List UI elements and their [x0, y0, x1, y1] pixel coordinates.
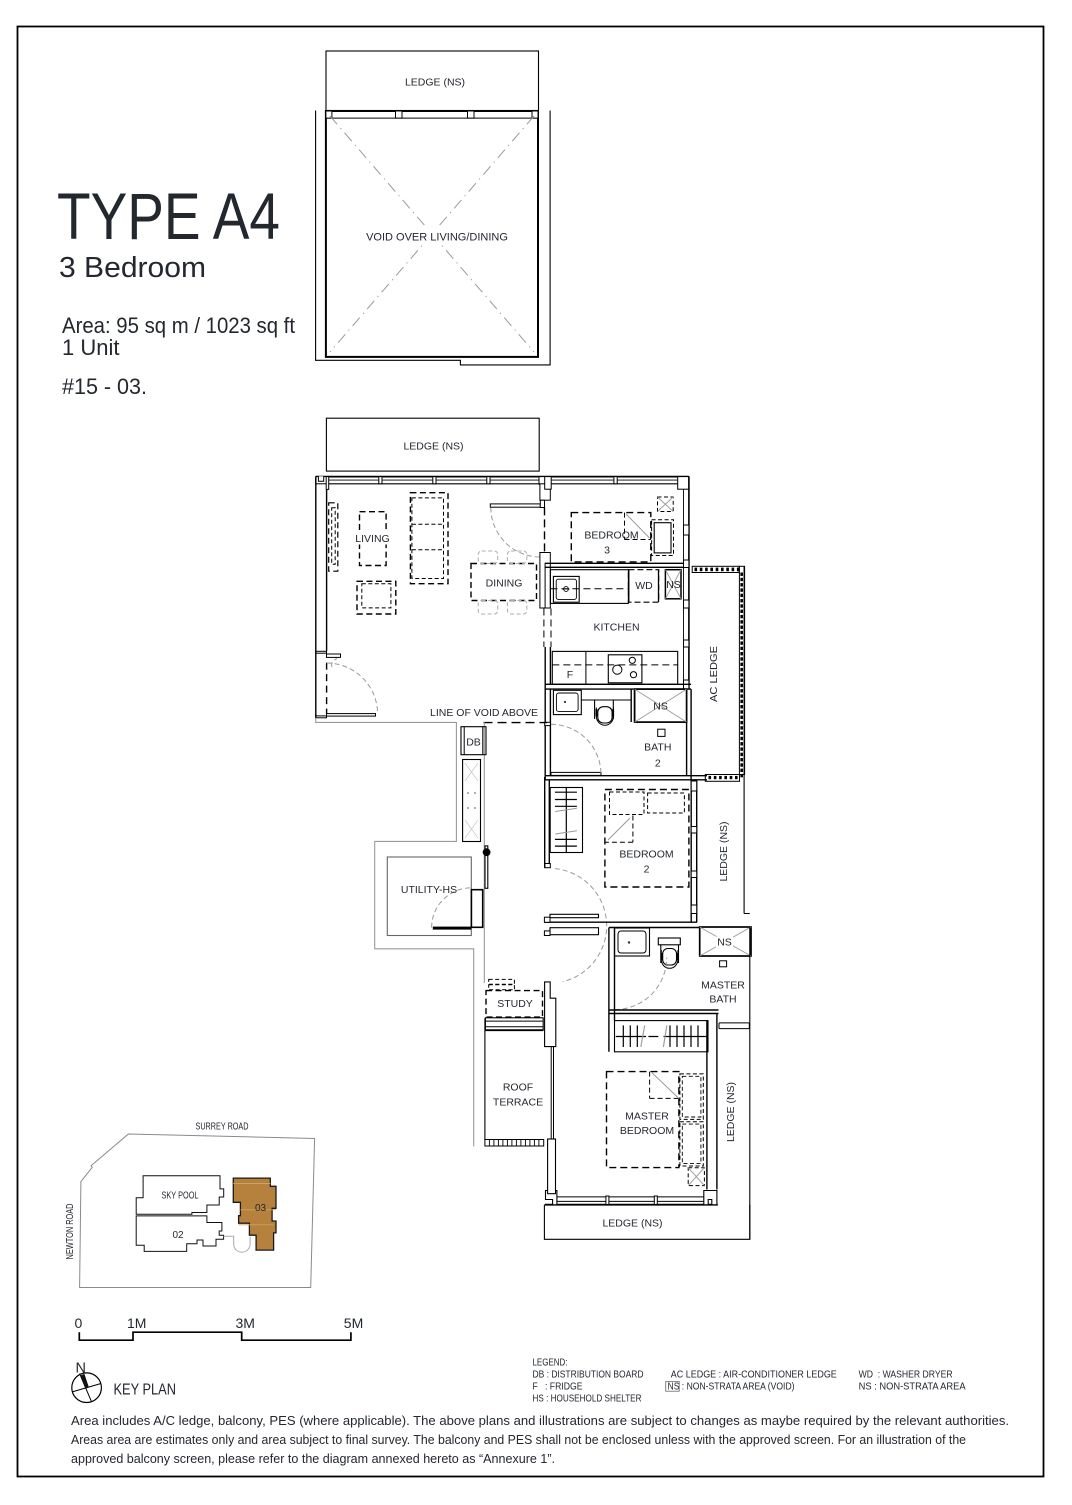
svg-text:AC LEDGE : AIR-CONDITIONER LED: AC LEDGE : AIR-CONDITIONER LEDGE [671, 1370, 837, 1381]
svg-text:WD : WASHER DRYER: WD : WASHER DRYER [859, 1370, 953, 1381]
svg-text:BEDROOM: BEDROOM [620, 1125, 674, 1137]
svg-text:KEY PLAN: KEY PLAN [114, 1382, 177, 1399]
svg-text:UTILITY-HS: UTILITY-HS [401, 884, 457, 896]
svg-text:02: 02 [172, 1230, 184, 1241]
svg-text:NS: NS [717, 937, 732, 949]
svg-text:LEDGE (NS): LEDGE (NS) [403, 441, 463, 453]
svg-text:TERRACE: TERRACE [493, 1097, 543, 1109]
svg-text:LIVING: LIVING [355, 533, 389, 545]
svg-text:DINING: DINING [486, 578, 523, 590]
svg-text:LEDGE (NS): LEDGE (NS) [725, 1082, 737, 1142]
svg-text:LEDGE (NS): LEDGE (NS) [405, 77, 465, 89]
svg-text:#15 - 03.: #15 - 03. [62, 374, 147, 399]
svg-text:2: 2 [644, 864, 650, 876]
svg-text:1 Unit: 1 Unit [62, 335, 119, 360]
svg-text:BATH: BATH [709, 994, 736, 1006]
svg-text:SKY POOL: SKY POOL [162, 1191, 199, 1202]
svg-text:BATH: BATH [644, 742, 671, 754]
svg-text:LEGEND:: LEGEND: [533, 1358, 568, 1369]
svg-text:LINE OF VOID ABOVE: LINE OF VOID ABOVE [430, 707, 538, 719]
svg-text:3M: 3M [236, 1315, 255, 1331]
svg-text:Area includes A/C ledge, balco: Area includes A/C ledge, balcony, PES (w… [71, 1413, 1009, 1428]
svg-text:KITCHEN: KITCHEN [593, 622, 639, 634]
svg-text:NS : NON-STRATA AREA: NS : NON-STRATA AREA [859, 1382, 966, 1393]
svg-text:2: 2 [655, 758, 661, 770]
svg-text:HS : HOUSEHOLD SHELTER: HS : HOUSEHOLD SHELTER [533, 1394, 642, 1405]
svg-text:3: 3 [604, 545, 610, 557]
svg-text:TYPE A4: TYPE A4 [57, 179, 280, 253]
svg-text:03: 03 [255, 1203, 267, 1214]
svg-text:1M: 1M [127, 1315, 146, 1331]
svg-text:0: 0 [75, 1315, 83, 1331]
svg-text:F: F [567, 669, 573, 681]
svg-text:LEDGE (NS): LEDGE (NS) [602, 1218, 662, 1230]
svg-text:F : FRIDGE: F : FRIDGE [533, 1382, 583, 1393]
svg-text:3 Bedroom: 3 Bedroom [59, 252, 206, 284]
svg-text:NS: NS [653, 701, 668, 713]
svg-text:DB : DISTRIBUTION BOARD: DB : DISTRIBUTION BOARD [533, 1370, 644, 1381]
svg-text:MASTER: MASTER [625, 1111, 669, 1123]
svg-text:BEDROOM: BEDROOM [619, 849, 673, 861]
svg-text:AC LEDGE: AC LEDGE [708, 646, 720, 702]
svg-text:STUDY: STUDY [497, 998, 533, 1010]
svg-text:Areas area are estimates only: Areas area are estimates only and area s… [71, 1432, 966, 1447]
svg-text:DB: DB [466, 737, 481, 749]
svg-text:N: N [76, 1361, 86, 1377]
svg-text:LEDGE (NS): LEDGE (NS) [718, 821, 730, 881]
svg-text:MASTER: MASTER [701, 980, 745, 992]
svg-text:VOID OVER LIVING/DINING: VOID OVER LIVING/DINING [366, 232, 508, 244]
svg-text:NS : NON-STRATA AREA (VOID): NS : NON-STRATA AREA (VOID) [668, 1382, 795, 1393]
svg-text:NS: NS [666, 579, 681, 591]
svg-text:5M: 5M [344, 1315, 363, 1331]
svg-text:ROOF: ROOF [503, 1082, 533, 1094]
svg-text:NEWTON ROAD: NEWTON ROAD [65, 1204, 76, 1260]
svg-text:WD: WD [635, 580, 653, 592]
svg-text:approved balcony screen, pleas: approved balcony screen, please refer to… [71, 1451, 555, 1466]
svg-text:SURREY ROAD: SURREY ROAD [196, 1122, 249, 1133]
svg-text:BEDROOM: BEDROOM [584, 530, 638, 542]
